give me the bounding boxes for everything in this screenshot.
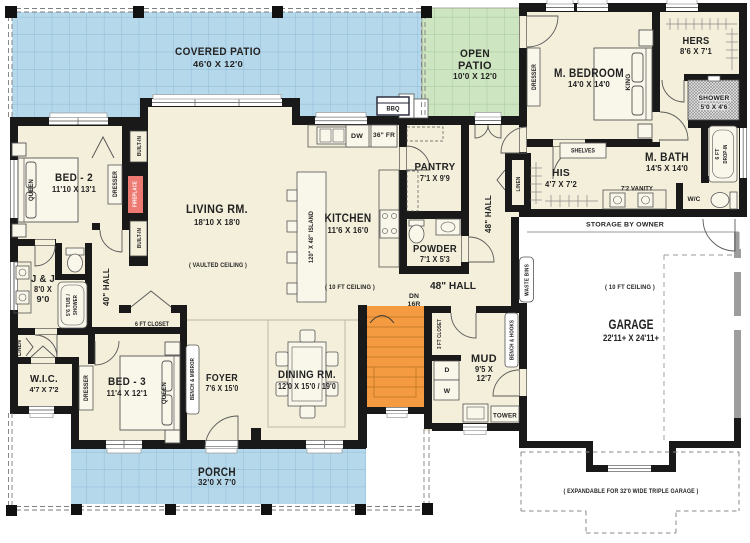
svg-text:32'0 X 7'0: 32'0 X 7'0 [198,478,236,487]
svg-text:LINEN: LINEN [516,177,522,192]
svg-text:TOWER: TOWER [493,413,517,420]
svg-text:( 10 FT CEILING ): ( 10 FT CEILING ) [605,284,655,291]
svg-text:W.I.C.: W.I.C. [30,373,58,385]
svg-text:7'6 X 15'0: 7'6 X 15'0 [206,384,239,393]
svg-text:BED - 2: BED - 2 [55,172,93,184]
svg-text:40" HALL: 40" HALL [101,268,111,306]
svg-text:COVERED PATIO: COVERED PATIO [175,46,261,58]
svg-text:4'7 X 7'2: 4'7 X 7'2 [30,385,59,394]
svg-text:FIREPLACE: FIREPLACE [133,181,139,207]
svg-text:DRESSER: DRESSER [112,171,119,197]
svg-text:5'0 X 4'6: 5'0 X 4'6 [701,104,728,111]
svg-text:48" HALL: 48" HALL [430,280,477,292]
svg-text:3 FT CLOSET: 3 FT CLOSET [437,319,443,349]
svg-text:KING: KING [625,74,632,91]
svg-text:12'0 X 15'0 / 19'0: 12'0 X 15'0 / 19'0 [278,382,336,391]
svg-text:LIVING RM.: LIVING RM. [186,202,248,216]
svg-text:6 FT: 6 FT [715,148,721,159]
svg-text:HERS: HERS [683,35,710,47]
svg-text:120" X 48" ISLAND: 120" X 48" ISLAND [308,211,315,263]
svg-text:D: D [444,367,449,374]
svg-text:LINEN: LINEN [16,340,23,356]
svg-text:KITCHEN: KITCHEN [325,211,372,225]
svg-text:BBQ: BBQ [387,106,400,113]
svg-text:M. BATH: M. BATH [645,150,689,164]
svg-text:11'6 X 16'0: 11'6 X 16'0 [328,226,369,235]
svg-text:46'0 X 12'0: 46'0 X 12'0 [193,60,243,69]
svg-text:14'0 X 14'0: 14'0 X 14'0 [568,80,610,89]
svg-text:POWDER: POWDER [413,243,457,255]
svg-text:10'0 X 12'0: 10'0 X 12'0 [453,72,497,81]
svg-text:J & J: J & J [31,273,55,285]
svg-text:7'1 X 9'9: 7'1 X 9'9 [420,174,450,183]
svg-text:QUEEN: QUEEN [161,382,168,404]
svg-text:DW: DW [351,133,364,140]
svg-text:SHOWER: SHOWER [73,295,79,315]
svg-text:PANTRY: PANTRY [415,161,456,173]
svg-text:16R: 16R [408,301,421,308]
svg-text:12'7: 12'7 [477,374,492,383]
svg-text:W/C: W/C [688,196,701,203]
svg-text:7'1 X 5'3: 7'1 X 5'3 [420,255,450,264]
svg-text:4'7 X 7'2: 4'7 X 7'2 [545,180,577,189]
svg-text:( EXPANDABLE FOR 32'0 WIDE TRI: ( EXPANDABLE FOR 32'0 WIDE TRIPLE GARAGE… [564,488,699,495]
svg-text:BENCH & HOOKS: BENCH & HOOKS [510,320,516,360]
svg-text:8'6 X 7'1: 8'6 X 7'1 [680,47,712,56]
svg-text:14'5 X 14'0: 14'5 X 14'0 [646,164,688,173]
svg-text:BUILT-IN: BUILT-IN [137,136,143,156]
svg-text:SHELVES: SHELVES [571,148,595,155]
svg-text:STORAGE BY OWNER: STORAGE BY OWNER [586,222,664,229]
svg-text:DINING RM.: DINING RM. [278,369,336,381]
svg-text:8'0 X: 8'0 X [34,285,52,294]
svg-text:SHOWER: SHOWER [699,95,730,102]
svg-text:7'2 VANITY: 7'2 VANITY [621,186,654,193]
svg-text:11'10 X 13'1: 11'10 X 13'1 [52,185,96,194]
svg-text:PORCH: PORCH [198,465,236,479]
svg-text:MUD: MUD [471,353,497,365]
svg-text:18'10 X 18'0: 18'10 X 18'0 [194,218,240,227]
svg-text:BUILT-IN: BUILT-IN [137,228,143,248]
svg-text:6 FT CLOSET: 6 FT CLOSET [135,321,169,328]
svg-text:11'4 X 12'1: 11'4 X 12'1 [107,389,148,398]
svg-text:22'11+ X 24'11+: 22'11+ X 24'11+ [603,333,659,343]
svg-text:HIS: HIS [552,167,570,179]
svg-text:W: W [444,388,451,395]
svg-text:DRESSER: DRESSER [531,64,538,90]
svg-text:DN: DN [409,293,419,300]
svg-text:M. BEDROOM: M. BEDROOM [554,66,624,80]
svg-text:DRESSER: DRESSER [83,375,90,401]
svg-text:WASTE BINS: WASTE BINS [525,264,531,296]
svg-text:OPEN: OPEN [460,48,490,60]
svg-text:BENCH & MIRROR: BENCH & MIRROR [190,358,196,400]
svg-text:BED - 3: BED - 3 [108,376,146,388]
svg-text:5'6 TUB /: 5'6 TUB / [66,294,72,316]
svg-text:( VAULTED CEILING ): ( VAULTED CEILING ) [189,262,247,269]
svg-text:48" HALL: 48" HALL [483,195,493,233]
svg-text:DROP-IN: DROP-IN [723,145,729,164]
svg-text:( 10 FT CEILING ): ( 10 FT CEILING ) [325,284,375,291]
svg-text:PATIO: PATIO [458,60,492,72]
svg-text:9'5 X: 9'5 X [475,365,493,374]
svg-text:9'0: 9'0 [37,295,50,304]
svg-text:FOYER: FOYER [206,372,238,384]
svg-text:GARAGE: GARAGE [609,317,654,332]
svg-text:QUEEN: QUEEN [28,179,35,201]
svg-text:36" FR: 36" FR [373,132,395,139]
